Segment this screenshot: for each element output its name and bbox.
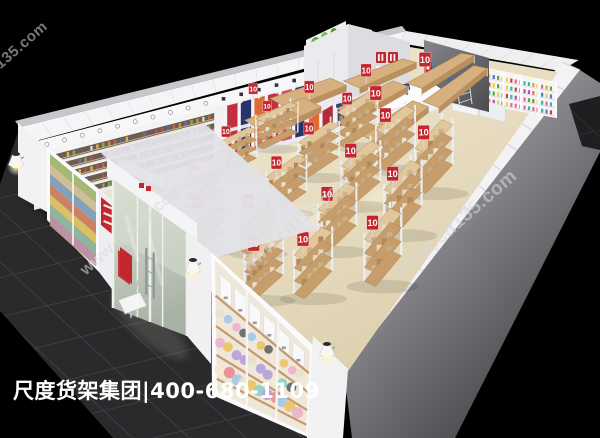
bottle	[545, 110, 547, 114]
price-tag-label: 10	[380, 110, 390, 120]
bay-logo-icon	[204, 101, 208, 105]
bottle	[545, 102, 547, 106]
price-tag-label: 10	[272, 159, 282, 168]
bottle	[510, 79, 512, 83]
monitor-glint	[448, 78, 452, 81]
bottle	[528, 82, 530, 86]
bottle	[532, 107, 534, 111]
product	[90, 156, 92, 160]
product	[67, 152, 69, 156]
product	[190, 120, 192, 124]
bottle	[528, 90, 530, 94]
product	[108, 182, 110, 186]
bottle	[506, 102, 508, 106]
price-tag-label: 10	[343, 94, 352, 103]
bottle	[541, 85, 543, 89]
bottle	[493, 83, 495, 87]
bin-label	[282, 346, 286, 349]
downlight	[546, 80, 549, 83]
product	[90, 166, 92, 170]
product	[96, 165, 98, 169]
plush-item	[224, 315, 233, 324]
bottle	[523, 89, 525, 93]
product	[90, 146, 92, 150]
plush-item	[223, 342, 233, 352]
product	[84, 158, 86, 162]
price-tag-label: 10	[305, 83, 314, 92]
downlight	[152, 124, 154, 126]
price-tag-label: 10	[388, 169, 398, 179]
bottle	[532, 99, 534, 103]
downlight	[493, 69, 496, 72]
price-tag-label: 10	[298, 234, 308, 244]
bin-label	[253, 322, 257, 325]
bottle	[497, 84, 499, 88]
bottle	[510, 87, 512, 91]
product	[161, 128, 163, 132]
bottle	[515, 79, 517, 83]
downlight	[99, 137, 101, 139]
store-3d-render: 1010101010101010101010101010101010101010…	[0, 0, 600, 438]
header-logo	[146, 186, 151, 191]
bottle	[532, 91, 534, 95]
downlight	[528, 76, 531, 79]
bay-logo-icon	[186, 106, 190, 110]
header-logo	[139, 183, 144, 188]
product	[202, 117, 204, 121]
bottle	[493, 75, 495, 79]
lamp-bulb	[12, 164, 21, 169]
bay-logo-icon	[63, 138, 67, 142]
bay-logo-icon	[222, 97, 226, 101]
bottle	[515, 96, 517, 100]
downlight	[258, 96, 260, 98]
lamp-cap	[189, 258, 197, 262]
brand-logo-sign	[376, 52, 386, 63]
price-tag-label: 10	[419, 128, 429, 138]
downlight	[205, 110, 207, 112]
lamp-bulb	[323, 354, 332, 359]
bottle	[541, 109, 543, 113]
downlight	[222, 105, 224, 107]
bottle	[550, 102, 552, 106]
downlight	[510, 73, 513, 76]
downlight	[116, 133, 118, 135]
product	[102, 163, 104, 167]
bottle	[523, 97, 525, 101]
price-tag-label: 10	[304, 124, 313, 133]
lamp-cap	[12, 152, 20, 156]
bottle	[506, 86, 508, 90]
bottle	[541, 101, 543, 105]
bin-label	[296, 359, 300, 362]
bin-label	[267, 334, 271, 337]
product	[79, 159, 81, 163]
bay-logo-icon	[169, 111, 173, 115]
plush-item	[215, 309, 224, 318]
plush-item	[232, 323, 241, 332]
product	[196, 118, 198, 122]
product	[208, 115, 210, 119]
downlight	[275, 92, 277, 94]
watermark-text: www.cd135.com	[0, 18, 51, 112]
lamp-bulb	[189, 270, 198, 275]
plush-item	[257, 341, 266, 350]
bottle	[510, 103, 512, 107]
bay-logo-icon	[80, 133, 84, 137]
price-tag-label: 10	[249, 85, 257, 93]
bottle	[541, 93, 543, 97]
bottle	[528, 98, 530, 102]
bottle	[510, 95, 512, 99]
price-tag-label: 10	[263, 104, 271, 111]
plush-item	[280, 359, 289, 368]
product	[143, 132, 145, 136]
product	[102, 184, 104, 188]
product	[108, 141, 110, 145]
downlight	[63, 146, 65, 148]
gondola-shadow	[347, 280, 420, 294]
store-render-scene: 1010101010101010101010101010101010101010…	[0, 0, 600, 438]
bottle	[523, 105, 525, 109]
bay-logo-icon	[116, 124, 120, 128]
plush-item	[292, 407, 303, 418]
bay-logo-icon	[151, 115, 155, 119]
logo-glyph	[382, 54, 384, 61]
logo-glyph	[394, 54, 396, 61]
logo-glyph	[390, 54, 392, 61]
product	[73, 150, 75, 154]
bay-logo-icon	[133, 120, 137, 124]
price-tag-label: 10	[420, 55, 430, 65]
plush-item	[264, 345, 273, 354]
bay-logo-icon	[275, 83, 279, 87]
product	[84, 168, 86, 172]
product	[114, 140, 116, 144]
caption-company-phone: 尺度货架集团|400-680-1109	[13, 375, 320, 405]
bottle	[545, 86, 547, 90]
bottle	[497, 76, 499, 80]
bottle	[493, 92, 495, 96]
price-tag-label: 10	[367, 218, 377, 228]
bottle	[550, 94, 552, 98]
product	[155, 129, 157, 133]
lamp-cap	[323, 342, 331, 346]
bottle	[497, 92, 499, 96]
bottle	[515, 88, 517, 92]
product	[102, 143, 104, 147]
bin-label	[224, 297, 228, 300]
product	[179, 123, 181, 127]
downlight	[240, 101, 242, 103]
bin-label	[238, 309, 242, 312]
product	[96, 144, 98, 148]
downlight	[134, 128, 136, 130]
bay-logo-icon	[292, 79, 296, 83]
downlight	[81, 142, 83, 144]
bottle	[506, 94, 508, 98]
price-tag-label: 10	[371, 88, 381, 98]
downlight	[187, 115, 189, 117]
downlight	[293, 87, 295, 89]
price-tag-label: 10	[362, 66, 372, 75]
bottle	[550, 87, 552, 91]
product	[167, 126, 169, 130]
bottle	[523, 81, 525, 85]
price-tag-label: 10	[222, 129, 230, 136]
bay-logo-icon	[239, 92, 243, 96]
bottle	[532, 83, 534, 87]
price-tag-label: 10	[346, 146, 356, 156]
bottle	[550, 110, 552, 114]
downlight	[169, 119, 171, 121]
bottle	[545, 94, 547, 98]
plush-item	[247, 333, 256, 342]
bottle	[506, 78, 508, 82]
product	[126, 137, 128, 141]
bay-logo-icon	[98, 129, 102, 133]
product	[173, 125, 175, 129]
logo-glyph	[378, 54, 380, 61]
product	[102, 173, 104, 177]
bottle	[515, 104, 517, 108]
product	[120, 138, 122, 142]
product	[185, 122, 187, 126]
bottle	[528, 106, 530, 110]
